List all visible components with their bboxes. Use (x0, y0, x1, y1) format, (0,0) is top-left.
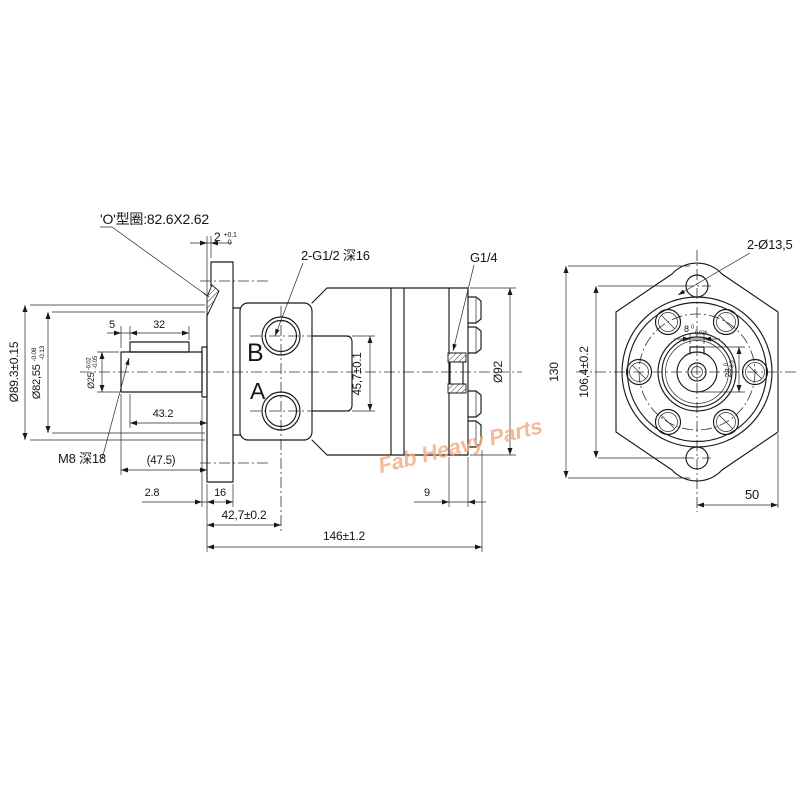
dim-shaft-length: 43.2 (153, 408, 174, 420)
dim-port-spacing: 45,7±0.1 (352, 352, 364, 395)
dim-port-center: 42,7±0.2 (221, 508, 267, 522)
holes-leader-line (678, 253, 750, 295)
side-dimension-lines (25, 243, 510, 547)
watermark-text: Fab Heavy Parts (376, 413, 545, 478)
dim-step-minus: 0 (228, 240, 232, 247)
oring-label: 'O'型圈:82.6X2.62 (100, 211, 209, 227)
dim-shaft-plus: -0.02 (87, 357, 93, 371)
end-view: 2-Ø13,5 130 106,4±0.2 50 8 0 -0.036 28 0… (547, 237, 798, 512)
dim-key-offset: 5 (109, 319, 115, 331)
ports-label: 2-G1/2 深16 (301, 248, 370, 263)
dim-key-height: 28 0 -0.3 (720, 360, 736, 377)
port-block (240, 303, 312, 440)
dim-hole-spacing: 106,4±0.2 (577, 346, 591, 398)
dimension-arrows (23, 241, 779, 550)
dim-pilot-outer: Ø89.3±0.15 (7, 341, 21, 402)
dim-shoulder: 2.8 (145, 487, 160, 499)
holes-label: 2-Ø13,5 (747, 237, 793, 252)
gear-section-plate (312, 336, 352, 411)
dim-shaft-total: (47.5) (147, 455, 176, 467)
dim-half-width: 50 (745, 487, 759, 502)
dim-key-height-minus: -0.3 (730, 360, 736, 369)
leader-lines (100, 227, 474, 459)
drain-port-bore (450, 362, 463, 384)
shaft-key (130, 342, 189, 352)
dim-flange-height: 130 (547, 362, 561, 382)
dim-step-plus: +0.1 (224, 232, 237, 239)
technical-drawing-page: 'O'型圈:82.6X2.62 2-G1/2 深16 G1/4 M8 深18 B… (0, 0, 800, 800)
dim-key-width-minus: -0.036 (693, 331, 708, 337)
dim-key-length: 32 (153, 319, 165, 331)
dim-overall-length: 146±1.2 (323, 529, 365, 543)
body-outline (312, 288, 449, 455)
dim-key-width-main: 8 (684, 324, 689, 334)
thread-label: M8 深18 (58, 451, 106, 466)
dim-pilot-main: Ø82,55 (31, 364, 43, 399)
dim-pilot-plus: -0.08 (31, 347, 38, 361)
hydraulic-motor-drawing: 'O'型圈:82.6X2.62 2-G1/2 深16 G1/4 M8 深18 B… (0, 0, 800, 800)
dim-pilot: Ø82,55 -0.08 -0.13 (27, 345, 46, 399)
dim-pilot-minus: -0.13 (39, 345, 46, 359)
drain-label: G1/4 (470, 250, 497, 265)
end-cover (449, 288, 468, 455)
dim-shaft-minus: -0.05 (93, 355, 99, 369)
dim-cover: 9 (424, 487, 430, 499)
port-a-label: A (250, 378, 266, 404)
dim-flange-thickness: 16 (214, 487, 226, 499)
oring-section-hatch (207, 285, 219, 316)
dim-shaft-main: Ø25 (86, 372, 96, 389)
port-b-label: B (247, 339, 263, 367)
flange-neck-lines (233, 308, 240, 435)
dim-body-dia: Ø92 (491, 360, 505, 383)
